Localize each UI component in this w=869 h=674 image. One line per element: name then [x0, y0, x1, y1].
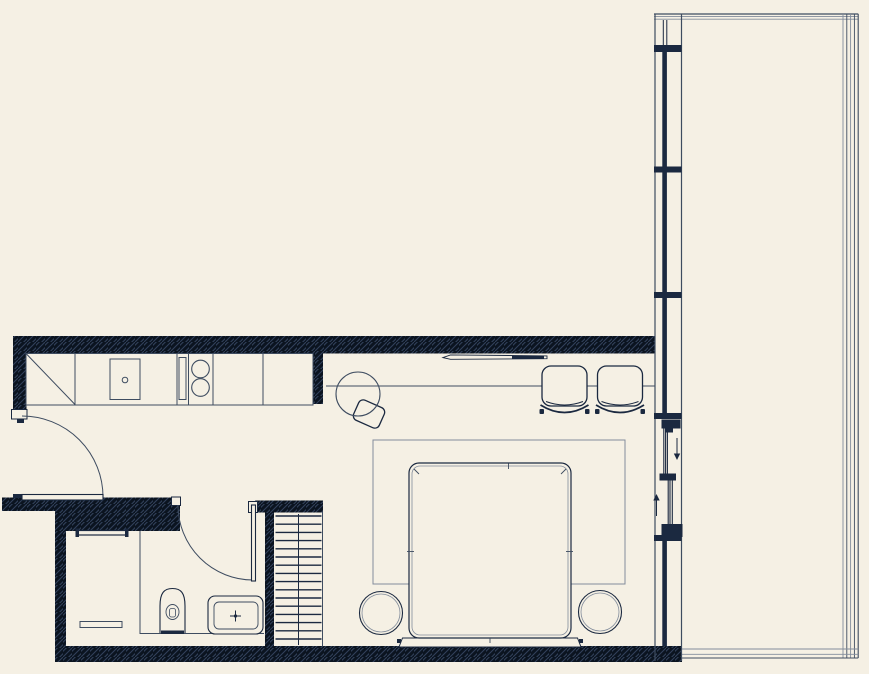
floor-plan: [0, 0, 869, 674]
wall-bottom: [55, 646, 682, 662]
glazing-segment: [662, 298, 667, 413]
toilet: [160, 589, 185, 635]
wall-left: [13, 336, 27, 419]
mullion-crossbar: [654, 292, 682, 298]
glazing-segment: [662, 541, 667, 646]
mullion-crossbar: [654, 167, 682, 173]
wall-bath-stairs-divider: [265, 512, 274, 648]
sliding-door-hardware-top: [662, 420, 681, 429]
door-leaf[interactable]: [252, 505, 256, 581]
sliding-door-hardware-bottom: [662, 524, 683, 537]
wall-kitchen-stub: [313, 353, 323, 404]
wall-bathroom-top: [55, 511, 180, 531]
mullion-crossbar: [654, 413, 682, 419]
glazing-segment: [662, 173, 667, 293]
glazing-segment: [662, 52, 667, 167]
wall-stairs-top: [255, 501, 323, 513]
door-jamb: [172, 497, 181, 506]
door-jamb: [12, 410, 28, 420]
bed: [397, 463, 583, 647]
floor-plan-drawing: [0, 0, 869, 674]
mattress: [409, 463, 571, 638]
sliding-door-handle[interactable]: [660, 474, 677, 481]
door-leaf[interactable]: [22, 495, 103, 501]
side-table: [360, 592, 403, 635]
vanity-sink: [208, 596, 263, 634]
side-table: [579, 591, 622, 634]
wall-bathroom-left: [55, 511, 66, 662]
mullion-crossbar: [654, 45, 682, 52]
wall-top: [13, 336, 655, 354]
